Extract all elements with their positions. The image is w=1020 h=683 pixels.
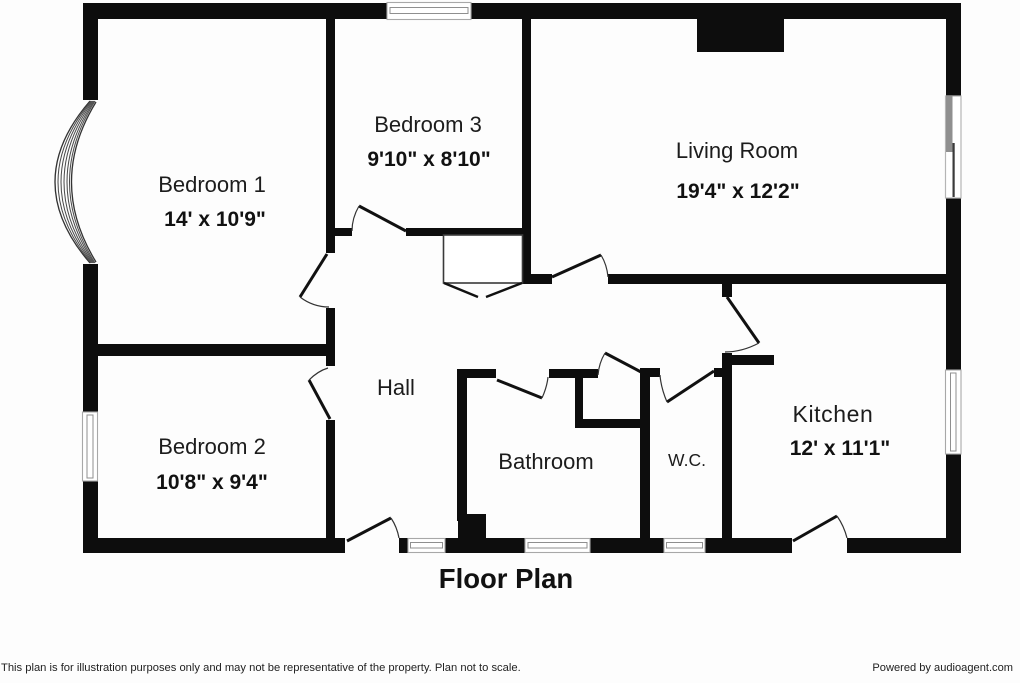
svg-text:12' x 11'1": 12' x 11'1" bbox=[790, 437, 891, 460]
svg-text:Bedroom 3: Bedroom 3 bbox=[374, 112, 482, 137]
svg-text:Bedroom 2: Bedroom 2 bbox=[158, 434, 266, 459]
svg-text:14' x 10'9": 14' x 10'9" bbox=[164, 208, 266, 231]
svg-text:Living Room: Living Room bbox=[676, 138, 798, 163]
svg-text:Bathroom: Bathroom bbox=[498, 449, 593, 474]
svg-text:9'10" x 8'10": 9'10" x 8'10" bbox=[367, 148, 490, 171]
svg-text:Bedroom 1: Bedroom 1 bbox=[158, 172, 266, 197]
svg-text:Powered by audioagent.com: Powered by audioagent.com bbox=[872, 662, 1013, 674]
svg-text:Hall: Hall bbox=[377, 375, 415, 400]
svg-text:19'4" x 12'2": 19'4" x 12'2" bbox=[676, 180, 799, 203]
svg-text:Kitchen: Kitchen bbox=[793, 401, 874, 427]
svg-text:Floor Plan: Floor Plan bbox=[439, 563, 573, 594]
svg-text:This plan is for illustration: This plan is for illustration purposes o… bbox=[1, 662, 521, 674]
svg-text:10'8" x 9'4": 10'8" x 9'4" bbox=[156, 471, 268, 494]
svg-text:W.C.: W.C. bbox=[668, 450, 706, 470]
